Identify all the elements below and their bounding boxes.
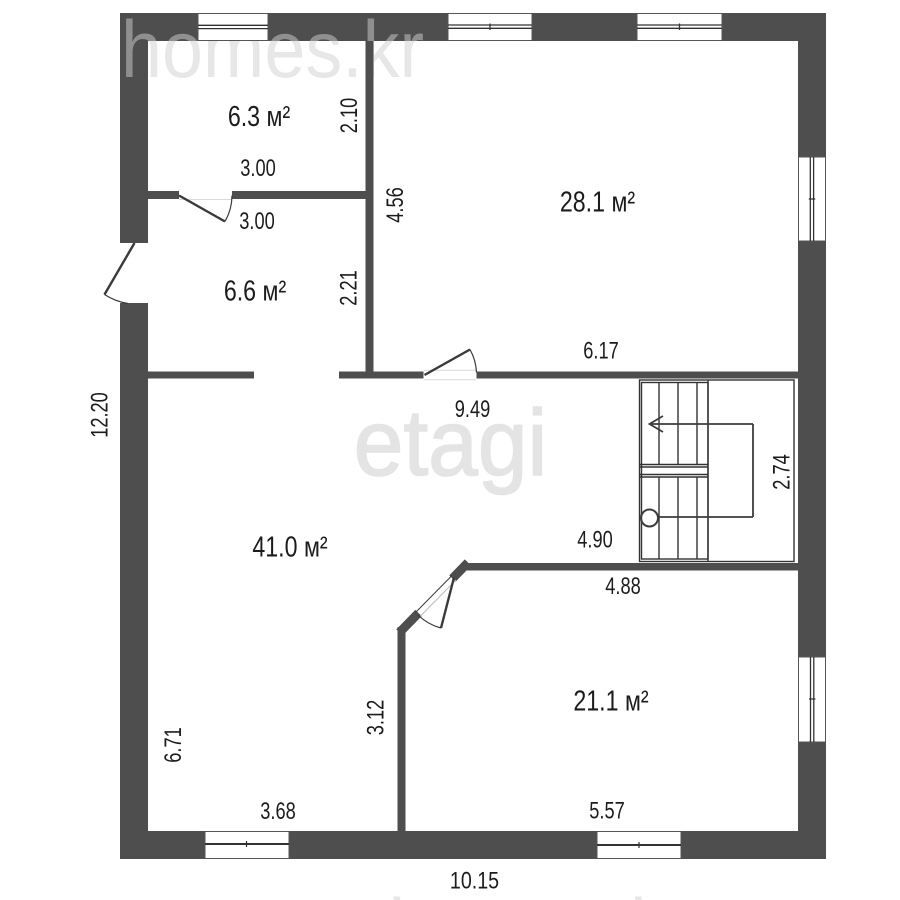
svg-text:28.1 м²: 28.1 м² [560, 185, 635, 218]
svg-text:3.68: 3.68 [260, 798, 295, 825]
svg-text:4.56: 4.56 [382, 187, 409, 222]
svg-text:4.88: 4.88 [605, 573, 640, 600]
svg-text:6.71: 6.71 [160, 727, 187, 762]
svg-text:3.00: 3.00 [239, 208, 275, 235]
svg-text:21.1 м²: 21.1 м² [573, 684, 648, 717]
svg-text:4.90: 4.90 [577, 526, 613, 553]
svg-text:12.20: 12.20 [86, 392, 113, 438]
svg-text:6.17: 6.17 [583, 337, 618, 364]
svg-text:2.74: 2.74 [768, 454, 795, 490]
svg-text:6.6 м²: 6.6 м² [224, 274, 287, 307]
svg-text:2.10: 2.10 [336, 98, 363, 134]
svg-text:2.21: 2.21 [335, 270, 362, 305]
svg-text:9.49: 9.49 [455, 396, 490, 423]
svg-text:6.3 м²: 6.3 м² [228, 99, 291, 132]
svg-text:3.12: 3.12 [362, 700, 389, 735]
svg-text:homes.kr: homes.kr [388, 883, 691, 900]
svg-text:41.0 м²: 41.0 м² [252, 530, 327, 563]
svg-text:5.57: 5.57 [589, 797, 624, 824]
svg-text:3.00: 3.00 [240, 155, 276, 182]
svg-text:10.15: 10.15 [450, 867, 499, 894]
svg-text:etagi: etagi [354, 391, 548, 496]
